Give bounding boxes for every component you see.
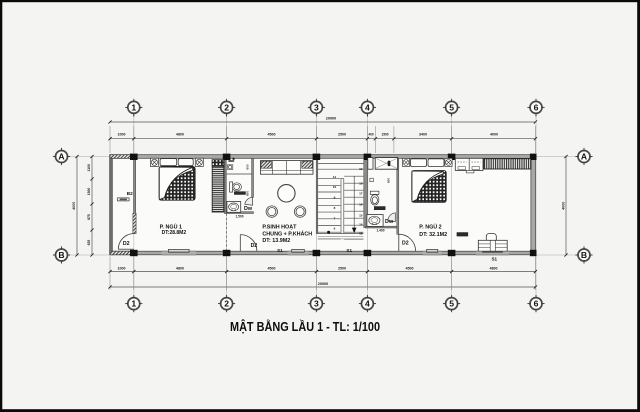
- svg-text:MẬT BẰNG LẦU 1 - TL: 1/100: MẬT BẰNG LẦU 1 - TL: 1/100: [230, 319, 380, 334]
- svg-text:19: 19: [359, 167, 363, 171]
- svg-text:3: 3: [314, 103, 319, 113]
- svg-text:Dw: Dw: [244, 206, 253, 212]
- svg-text:1100: 1100: [87, 164, 91, 171]
- svg-text:2: 2: [224, 299, 229, 309]
- svg-text:10: 10: [333, 185, 337, 189]
- svg-text:CHUNG + P.KHÁCH: CHUNG + P.KHÁCH: [262, 230, 312, 237]
- svg-text:8: 8: [334, 206, 336, 210]
- svg-text:11: 11: [333, 175, 337, 179]
- svg-text:DT:28.8M2: DT:28.8M2: [162, 230, 187, 236]
- svg-text:6: 6: [534, 299, 539, 309]
- svg-text:875: 875: [87, 214, 91, 220]
- svg-text:3: 3: [314, 299, 319, 309]
- svg-text:9: 9: [334, 196, 336, 200]
- svg-text:2500: 2500: [338, 133, 346, 137]
- svg-text:20000: 20000: [318, 282, 329, 286]
- svg-text:6: 6: [534, 103, 539, 113]
- svg-text:17: 17: [359, 192, 363, 196]
- svg-text:D2: D2: [123, 241, 130, 247]
- svg-text:15: 15: [359, 214, 363, 218]
- svg-text:D2: D2: [251, 243, 258, 249]
- svg-text:4000: 4000: [72, 202, 76, 210]
- svg-text:14: 14: [359, 223, 363, 227]
- svg-text:S1: S1: [346, 248, 352, 253]
- svg-text:3400: 3400: [419, 133, 427, 137]
- svg-text:4800: 4800: [176, 133, 184, 137]
- svg-text:4: 4: [365, 299, 370, 309]
- svg-text:1.400: 1.400: [377, 229, 385, 233]
- svg-text:4800: 4800: [490, 266, 498, 270]
- svg-text:16: 16: [359, 203, 363, 207]
- svg-text:A: A: [581, 152, 587, 162]
- svg-text:4000: 4000: [490, 133, 498, 137]
- svg-text:600: 600: [386, 178, 390, 183]
- svg-text:400: 400: [368, 133, 374, 137]
- svg-text:7: 7: [334, 217, 336, 221]
- svg-text:1500: 1500: [381, 133, 388, 137]
- svg-text:2500: 2500: [338, 266, 346, 270]
- svg-text:Dw: Dw: [385, 219, 394, 225]
- svg-text:2: 2: [224, 103, 229, 113]
- svg-text:5: 5: [449, 299, 454, 309]
- svg-text:DT: 32.1M2: DT: 32.1M2: [419, 232, 447, 238]
- svg-text:600: 600: [246, 164, 250, 169]
- svg-text:625: 625: [87, 240, 91, 246]
- svg-text:DT: 13.9M2: DT: 13.9M2: [262, 238, 290, 244]
- svg-text:4000: 4000: [561, 202, 565, 210]
- svg-text:18: 18: [359, 182, 363, 186]
- svg-text:20000: 20000: [326, 117, 337, 121]
- svg-text:S1: S1: [277, 248, 283, 253]
- svg-text:D2: D2: [402, 241, 409, 247]
- svg-text:1.500: 1.500: [236, 215, 244, 219]
- svg-text:600: 600: [246, 191, 250, 196]
- svg-text:1000: 1000: [118, 133, 126, 137]
- svg-text:4500: 4500: [268, 133, 276, 137]
- svg-text:P. NGỦ 2: P. NGỦ 2: [419, 224, 441, 231]
- svg-text:1500: 1500: [87, 188, 91, 196]
- svg-text:4800: 4800: [176, 266, 184, 270]
- svg-text:5: 5: [449, 103, 454, 113]
- svg-text:6: 6: [334, 227, 336, 231]
- svg-text:1000: 1000: [118, 266, 126, 270]
- svg-text:S1: S1: [491, 256, 497, 261]
- svg-text:4500: 4500: [406, 266, 414, 270]
- svg-text:B: B: [581, 250, 587, 260]
- svg-text:A: A: [58, 152, 64, 162]
- svg-text:4: 4: [365, 103, 370, 113]
- svg-text:4500: 4500: [268, 266, 276, 270]
- svg-text:B: B: [58, 250, 64, 260]
- svg-text:P.SINH HOẠT: P.SINH HOẠT: [262, 224, 297, 230]
- svg-text:B2: B2: [127, 191, 133, 196]
- svg-text:1: 1: [131, 103, 136, 113]
- svg-text:1: 1: [131, 299, 136, 309]
- svg-text:13: 13: [359, 232, 363, 236]
